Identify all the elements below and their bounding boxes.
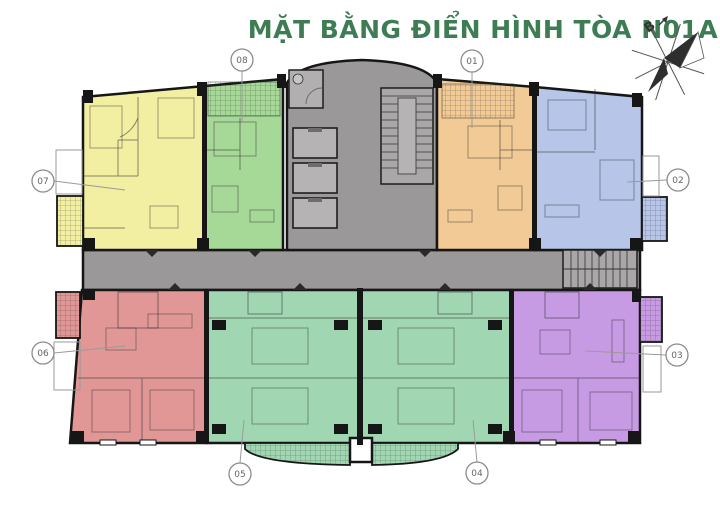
ledge-bottom-right	[643, 346, 661, 392]
compass-north-label: B	[642, 18, 659, 36]
balcony-04-curved	[372, 443, 458, 465]
svg-text:08: 08	[236, 56, 248, 66]
apartment-05	[207, 290, 360, 443]
svg-text:04: 04	[471, 469, 483, 479]
ledge-top-right	[643, 156, 659, 196]
balcony-07	[57, 196, 83, 246]
svg-text:06: 06	[37, 349, 49, 359]
apartment-06	[70, 290, 207, 443]
balcony-02	[642, 197, 667, 241]
trash-chute-room	[289, 70, 323, 108]
balcony-01	[442, 84, 514, 118]
balcony-03	[640, 297, 662, 342]
apartment-03	[512, 290, 640, 443]
floor-plan-page: MẶT BẰNG ĐIỂN HÌNH TÒA N01A	[0, 0, 720, 507]
apartment-07	[83, 86, 205, 250]
elevator-bank	[293, 128, 337, 228]
central-corridor	[83, 250, 640, 290]
balcony-05-curved	[245, 443, 350, 465]
svg-text:07: 07	[37, 177, 48, 187]
svg-text:03: 03	[671, 351, 682, 361]
apartment-02	[535, 87, 642, 250]
svg-text:02: 02	[672, 176, 683, 186]
ledge-top-left	[56, 150, 82, 194]
floor-plan-drawing: 01 02 03 04 05 06 07	[0, 0, 720, 507]
balcony-08	[208, 82, 280, 116]
core-staircase	[381, 88, 433, 184]
svg-text:01: 01	[466, 57, 477, 67]
svg-text:05: 05	[234, 470, 245, 480]
balcony-06	[56, 292, 80, 338]
apartment-04	[360, 290, 512, 443]
